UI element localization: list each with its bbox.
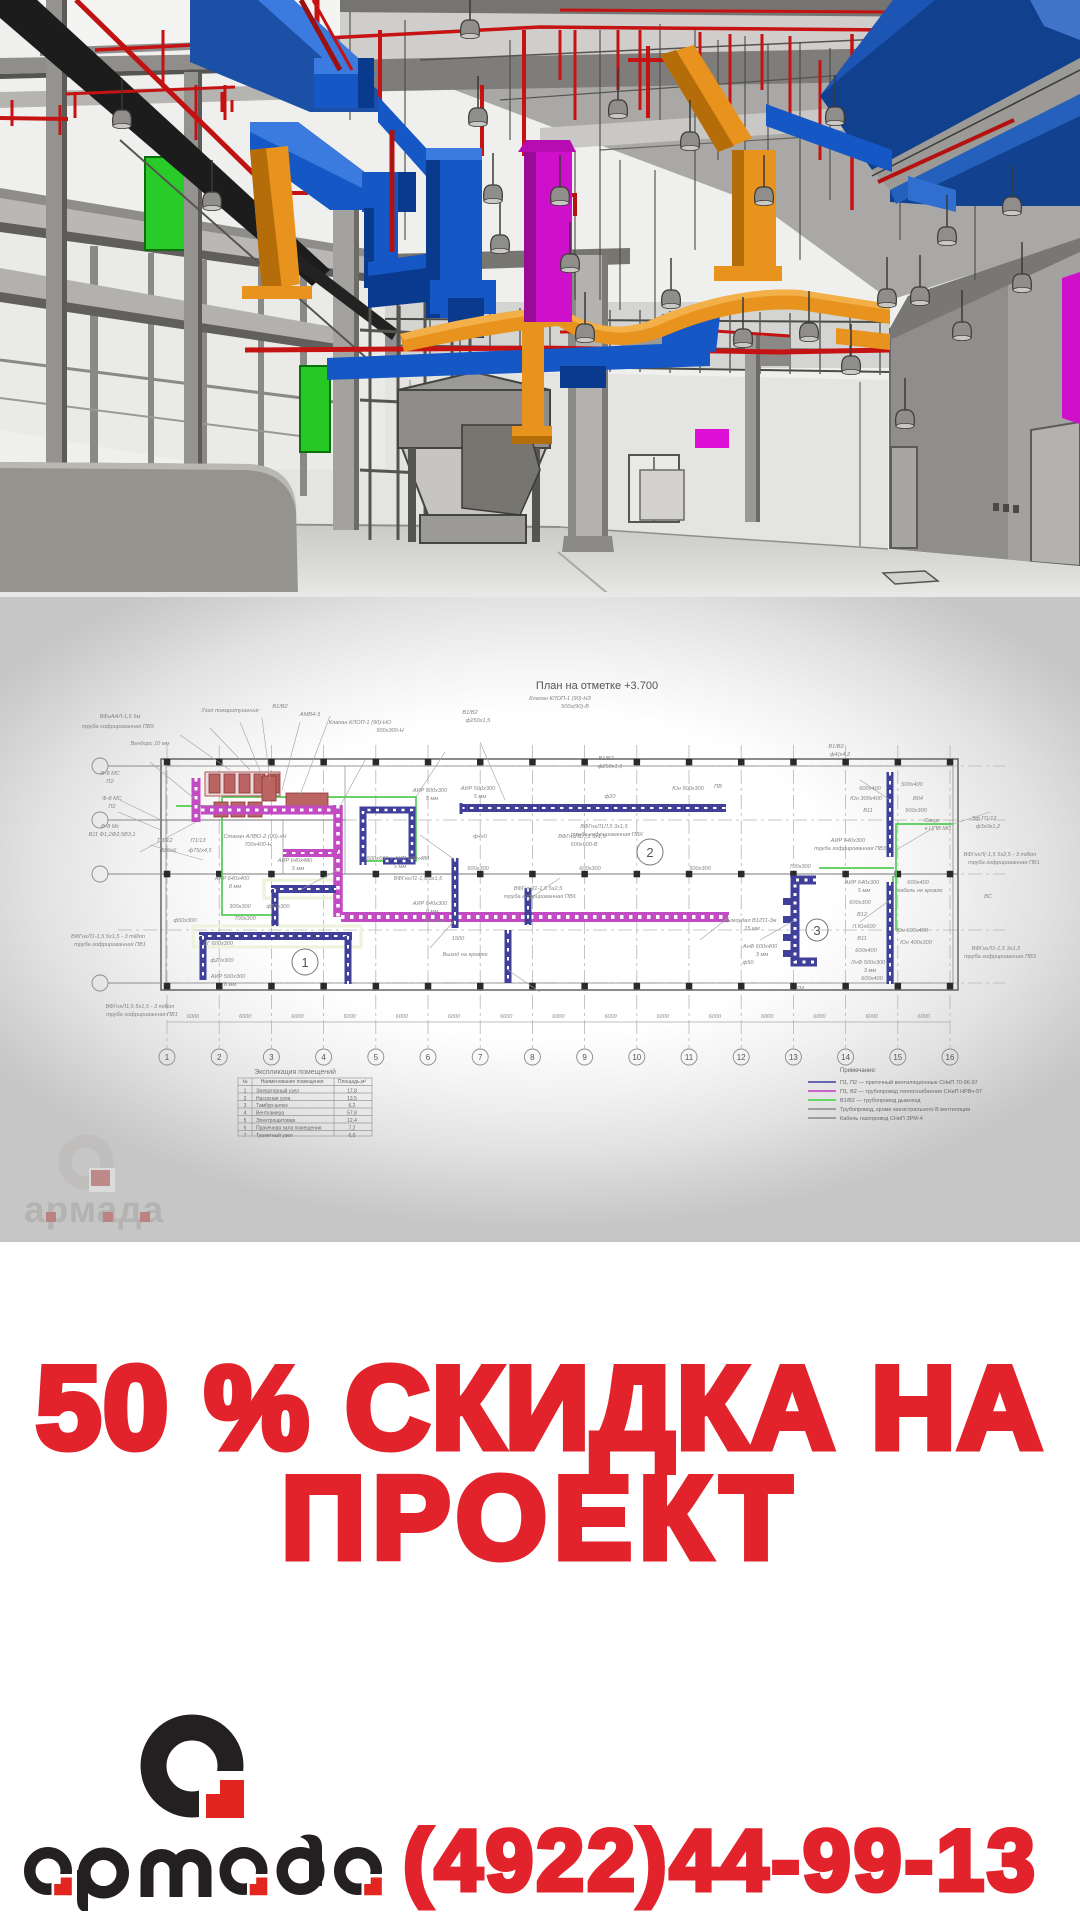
- svg-text:5: 5: [374, 1053, 379, 1062]
- svg-text:600х400: 600х400: [859, 786, 881, 792]
- svg-text:600х300: 600х300: [849, 900, 871, 906]
- svg-text:3: 3: [244, 1103, 247, 1109]
- svg-text:ЛнФ 500х300: ЛнФ 500х300: [850, 960, 886, 966]
- svg-text:13,5: 13,5: [347, 1096, 357, 1102]
- svg-text:Трубопровод, кроме магистральн: Трубопровод, кроме магистрального В вент…: [840, 1107, 970, 1113]
- svg-text:6 мм: 6 мм: [224, 982, 236, 988]
- svg-text:500х300: 500х300: [467, 866, 489, 872]
- svg-text:В04: В04: [913, 796, 923, 802]
- svg-text:Тамбур-шлюз: Тамбур-шлюз: [256, 1103, 288, 1109]
- svg-text:6000: 6000: [918, 1014, 931, 1020]
- svg-text:Электрощитовая: Электрощитовая: [256, 1118, 296, 1124]
- svg-text:ф4х0: ф4х0: [473, 834, 488, 840]
- svg-text:ф50х300: ф50х300: [266, 904, 290, 910]
- svg-text:В1/В2 — трубопровод дымоход: В1/В2 — трубопровод дымоход: [840, 1098, 921, 1104]
- svg-text:План на отметке +3.700: План на отметке +3.700: [536, 680, 658, 692]
- svg-text:АИР 500х300: АИР 500х300: [460, 786, 496, 792]
- svg-text:Вендорс 10 мм: Вендорс 10 мм: [130, 741, 169, 747]
- svg-text:6000: 6000: [291, 1014, 304, 1020]
- svg-text:57,8: 57,8: [347, 1111, 357, 1117]
- svg-text:4: 4: [244, 1111, 247, 1117]
- svg-text:2: 2: [244, 1096, 247, 1102]
- svg-text:ВФГнхЛ1-1,5 3х1,5: ВФГнхЛ1-1,5 3х1,5: [394, 876, 443, 882]
- svg-text:600х400: 600х400: [861, 976, 883, 982]
- svg-text:6000: 6000: [552, 1014, 565, 1020]
- svg-text:600х300: 600х300: [579, 866, 601, 872]
- svg-text:Элеваторный узел: Элеваторный узел: [256, 1087, 299, 1094]
- svg-text:15: 15: [893, 1053, 902, 1062]
- svg-text:500х600-В: 500х600-В: [570, 842, 597, 848]
- svg-text:ВФГнхЛ1-1,5 3х1,5: ВФГнхЛ1-1,5 3х1,5: [972, 946, 1021, 952]
- svg-text:ВФГнхЛ1Л,5 5х1,5: ВФГнхЛ1Л,5 5х1,5: [558, 834, 606, 840]
- svg-text:ДГ 600х300: ДГ 600х300: [202, 941, 234, 947]
- svg-text:500х300: 500х300: [689, 866, 711, 872]
- svg-text:кабель не кровле: кабель не кровле: [897, 888, 942, 894]
- svg-text:6000: 6000: [500, 1014, 513, 1020]
- svg-text:Туалетный узел: Туалетный узел: [256, 1132, 293, 1139]
- svg-text:Клапан КЛОП-1 (90)-НЗ: Клапан КЛОП-1 (90)-НЗ: [529, 696, 591, 702]
- svg-text:500х(90)-В: 500х(90)-В: [561, 704, 589, 710]
- svg-text:6000: 6000: [343, 1014, 356, 1020]
- svg-text:Л.Юх600: Л.Юх600: [851, 924, 876, 930]
- svg-text:В1/В2: В1/В2: [598, 756, 614, 762]
- svg-text:6000: 6000: [865, 1014, 878, 1020]
- svg-text:труба гофрированная ПВ3: труба гофрированная ПВ3: [814, 846, 887, 852]
- svg-text:5: 5: [244, 1118, 247, 1124]
- svg-text:6: 6: [244, 1125, 247, 1131]
- svg-text:к ЦПВ МС: к ЦПВ МС: [925, 826, 952, 832]
- svg-text:Юн 300х400: Юн 300х400: [850, 796, 883, 802]
- svg-text:300х300: 300х300: [229, 904, 251, 910]
- svg-text:6,0: 6,0: [349, 1133, 356, 1139]
- svg-text:600х400: 600х400: [855, 948, 877, 954]
- svg-text:ф20х6: ф20х6: [160, 848, 178, 854]
- svg-text:5 мм: 5 мм: [474, 794, 486, 800]
- svg-text:6000: 6000: [448, 1014, 461, 1020]
- svg-text:Дымоудал В1/П1-3м: Дымоудал В1/П1-3м: [723, 918, 777, 924]
- svg-text:Ф-8 МС: Ф-8 МС: [102, 796, 123, 802]
- svg-text:В11: В11: [863, 808, 873, 814]
- svg-text:1: 1: [244, 1088, 247, 1094]
- svg-text:АИР 640х300: АИР 640х300: [412, 901, 448, 907]
- svg-text:700х400-Н: 700х400-Н: [244, 842, 272, 848]
- svg-text:2: 2: [646, 845, 653, 860]
- svg-text:16: 16: [946, 1053, 955, 1062]
- svg-text:Эф П1/12: Эф П1/12: [971, 816, 997, 822]
- svg-text:Сверх: Сверх: [924, 818, 940, 824]
- svg-text:АИР 640х400: АИР 640х400: [214, 876, 250, 882]
- svg-text:труба гофрированная ПВ1: труба гофрированная ПВ1: [106, 1012, 178, 1018]
- svg-text:14: 14: [841, 1053, 850, 1062]
- svg-text:АнФ 600х400: АнФ 600х400: [742, 944, 778, 950]
- svg-text:труба гофрированная ПВХ: труба гофрированная ПВХ: [504, 894, 576, 900]
- svg-text:15 мм: 15 мм: [744, 926, 760, 932]
- svg-text:ф50: ф50: [743, 960, 755, 966]
- svg-text:3 мм: 3 мм: [756, 952, 768, 958]
- svg-text:ВФГнхЛ1-1,5 5х2,5: ВФГнхЛ1-1,5 5х2,5: [514, 886, 563, 892]
- svg-text:ВФиААЛ-1,5 5м: ВФиААЛ-1,5 5м: [100, 714, 141, 720]
- svg-text:П1, В2 — трубопровод теплоснаб: П1, В2 — трубопровод теплоснабжения СНиП…: [840, 1089, 982, 1095]
- svg-text:6000: 6000: [709, 1014, 722, 1020]
- svg-text:ф20: ф20: [605, 794, 617, 800]
- svg-text:500х400: 500х400: [901, 782, 923, 788]
- svg-text:8 мм: 8 мм: [426, 909, 438, 915]
- svg-text:Примечание:: Примечание:: [840, 1068, 877, 1074]
- svg-text:3: 3: [813, 923, 820, 938]
- svg-text:армада: армада: [24, 1189, 164, 1230]
- svg-text:Юн 500х300: Юн 500х300: [672, 786, 705, 792]
- svg-text:9: 9: [582, 1053, 587, 1062]
- svg-text:АИР 640х300: АИР 640х300: [844, 880, 880, 886]
- svg-text:Выход на кровлю: Выход на кровлю: [442, 952, 488, 958]
- svg-text:5 мм: 5 мм: [292, 866, 304, 872]
- svg-text:6000: 6000: [187, 1014, 200, 1020]
- svg-text:Узел пожаротушения: Узел пожаротушения: [200, 708, 258, 714]
- svg-text:3: 3: [269, 1053, 274, 1062]
- svg-text:ф3х0х1,2: ф3х0х1,2: [976, 824, 1001, 830]
- svg-text:В1/В2: В1/В2: [462, 710, 478, 716]
- svg-text:Подъём: Подъём: [426, 918, 447, 924]
- svg-text:П1/13: П1/13: [191, 838, 207, 844]
- svg-text:500х300: 500х300: [905, 808, 927, 814]
- svg-text:Насосная узла: Насосная узла: [256, 1096, 291, 1102]
- svg-text:12,4: 12,4: [347, 1118, 357, 1124]
- svg-text:ВФГнхЛ1Л,5 3х1,5: ВФГнхЛ1Л,5 3х1,5: [580, 824, 628, 830]
- svg-text:АИР 640х480: АИР 640х480: [277, 858, 313, 864]
- svg-text:ф75(х4,5: ф75(х4,5: [188, 848, 212, 854]
- svg-text:В1/В2: В1/В2: [272, 704, 288, 710]
- svg-text:Стакан АЛВО-2 (90)-хН: Стакан АЛВО-2 (90)-хН: [224, 834, 288, 840]
- svg-text:7: 7: [244, 1133, 247, 1139]
- svg-text:7,2: 7,2: [349, 1125, 356, 1131]
- svg-text:500х300-Н: 500х300-Н: [376, 728, 404, 734]
- svg-text:ф250х1,5: ф250х1,5: [466, 718, 491, 724]
- svg-text:10: 10: [632, 1053, 641, 1062]
- svg-text:ПВ: ПВ: [714, 784, 722, 790]
- svg-text:1: 1: [165, 1053, 170, 1062]
- svg-text:Венткамера: Венткамера: [256, 1111, 284, 1117]
- svg-text:1: 1: [301, 955, 308, 970]
- svg-text:6,2: 6,2: [349, 1103, 356, 1109]
- svg-text:6000: 6000: [396, 1014, 409, 1020]
- svg-text:Юн 600х400: Юн 600х400: [896, 928, 929, 934]
- svg-text:600х400: 600х400: [907, 880, 929, 886]
- svg-text:ф20х300: ф20х300: [210, 958, 234, 964]
- svg-text:Экспликация помещений: Экспликация помещений: [254, 1068, 336, 1076]
- svg-text:5 мм: 5 мм: [858, 888, 870, 894]
- svg-text:АИР 640х300: АИР 640х300: [830, 838, 866, 844]
- svg-text:труба гофрированная ПВ1: труба гофрированная ПВ1: [968, 860, 1040, 866]
- svg-text:П1/12: П1/12: [158, 838, 174, 844]
- svg-text:7: 7: [478, 1053, 483, 1062]
- svg-text:7М: 7М: [796, 986, 804, 992]
- svg-text:6000: 6000: [813, 1014, 826, 1020]
- svg-text:500х600 + АИР 640х480: 500х600 + АИР 640х480: [367, 856, 430, 862]
- svg-text:Клапан КЛОП-1 (90)-НО: Клапан КЛОП-1 (90)-НО: [329, 720, 392, 726]
- svg-text:труба гофрированная ПВХ: труба гофрированная ПВХ: [82, 724, 154, 730]
- svg-text:В12: В12: [857, 912, 868, 918]
- svg-text:12: 12: [737, 1053, 746, 1062]
- svg-text:ВФГнхЛ1-1,5 5х1,5 - 3 million: ВФГнхЛ1-1,5 5х1,5 - 3 million: [71, 934, 145, 940]
- svg-text:АИР 500х300: АИР 500х300: [210, 974, 246, 980]
- svg-text:6: 6: [426, 1053, 431, 1062]
- svg-text:1500: 1500: [452, 936, 465, 942]
- svg-text:труба гофрированная ПВ3: труба гофрированная ПВ3: [964, 954, 1037, 960]
- svg-text:6000: 6000: [604, 1014, 617, 1020]
- svg-text:700х300: 700х300: [789, 864, 811, 870]
- svg-text:В1/В2: В1/В2: [828, 744, 844, 750]
- svg-text:2: 2: [217, 1053, 222, 1062]
- svg-text:3 мм: 3 мм: [864, 968, 876, 974]
- svg-text:В11 Ф1,2Ф2,5В3,1: В11 Ф1,2Ф2,5В3,1: [88, 832, 135, 838]
- svg-text:П2: П2: [106, 779, 114, 785]
- svg-text:П1, П2 — приточный вентиляцион: П1, П2 — приточный вентиляционные СНиП 7…: [840, 1079, 978, 1086]
- svg-text:П2: П2: [108, 804, 116, 810]
- svg-text:8 мм: 8 мм: [229, 884, 241, 890]
- svg-text:5 мм: 5 мм: [394, 864, 406, 870]
- svg-text:17,8: 17,8: [347, 1088, 357, 1094]
- svg-text:6000: 6000: [239, 1014, 252, 1020]
- svg-text:Ф-8 МС: Ф-8 МС: [100, 771, 121, 777]
- svg-text:11: 11: [685, 1053, 694, 1062]
- svg-text:АМВ4-3: АМВ4-3: [299, 712, 321, 718]
- svg-text:Кабель газопровод СНиП ЗРМ-4: Кабель газопровод СНиП ЗРМ-4: [840, 1116, 923, 1122]
- svg-text:ф250х1,5: ф250х1,5: [598, 764, 623, 770]
- svg-text:5 мм: 5 мм: [426, 796, 438, 802]
- svg-text:ВФГнхЛ1,5 5х1,5 - 3 million: ВФГнхЛ1,5 5х1,5 - 3 million: [105, 1004, 174, 1010]
- svg-text:13: 13: [789, 1053, 798, 1062]
- svg-text:АИР 500х300: АИР 500х300: [412, 788, 448, 794]
- svg-text:№: №: [242, 1079, 247, 1085]
- svg-text:ВФГнхЛ(-1,5 5х2,5 - 3 million: ВФГнхЛ(-1,5 5х2,5 - 3 million: [964, 852, 1037, 858]
- svg-text:ф50х300: ф50х300: [173, 918, 197, 924]
- svg-text:6000: 6000: [657, 1014, 670, 1020]
- svg-text:700х300: 700х300: [234, 916, 256, 922]
- svg-text:ВС: ВС: [984, 894, 993, 900]
- svg-text:Прачечная зала помещения: Прачечная зала помещения: [256, 1125, 322, 1131]
- svg-text:Площадь,м²: Площадь,м²: [338, 1079, 367, 1085]
- svg-text:ф4(х4,2: ф4(х4,2: [830, 752, 851, 758]
- svg-text:Юн 400х300: Юн 400х300: [900, 940, 933, 946]
- svg-text:8: 8: [530, 1053, 535, 1062]
- svg-text:6000: 6000: [761, 1014, 774, 1020]
- svg-text:Ф-8 Мс: Ф-8 Мс: [101, 824, 120, 830]
- svg-text:4: 4: [321, 1053, 326, 1062]
- svg-text:В11: В11: [857, 936, 867, 942]
- svg-text:труба гофрированная ПВ1: труба гофрированная ПВ1: [74, 942, 146, 948]
- svg-text:Наименование помещения: Наименование помещения: [261, 1079, 324, 1085]
